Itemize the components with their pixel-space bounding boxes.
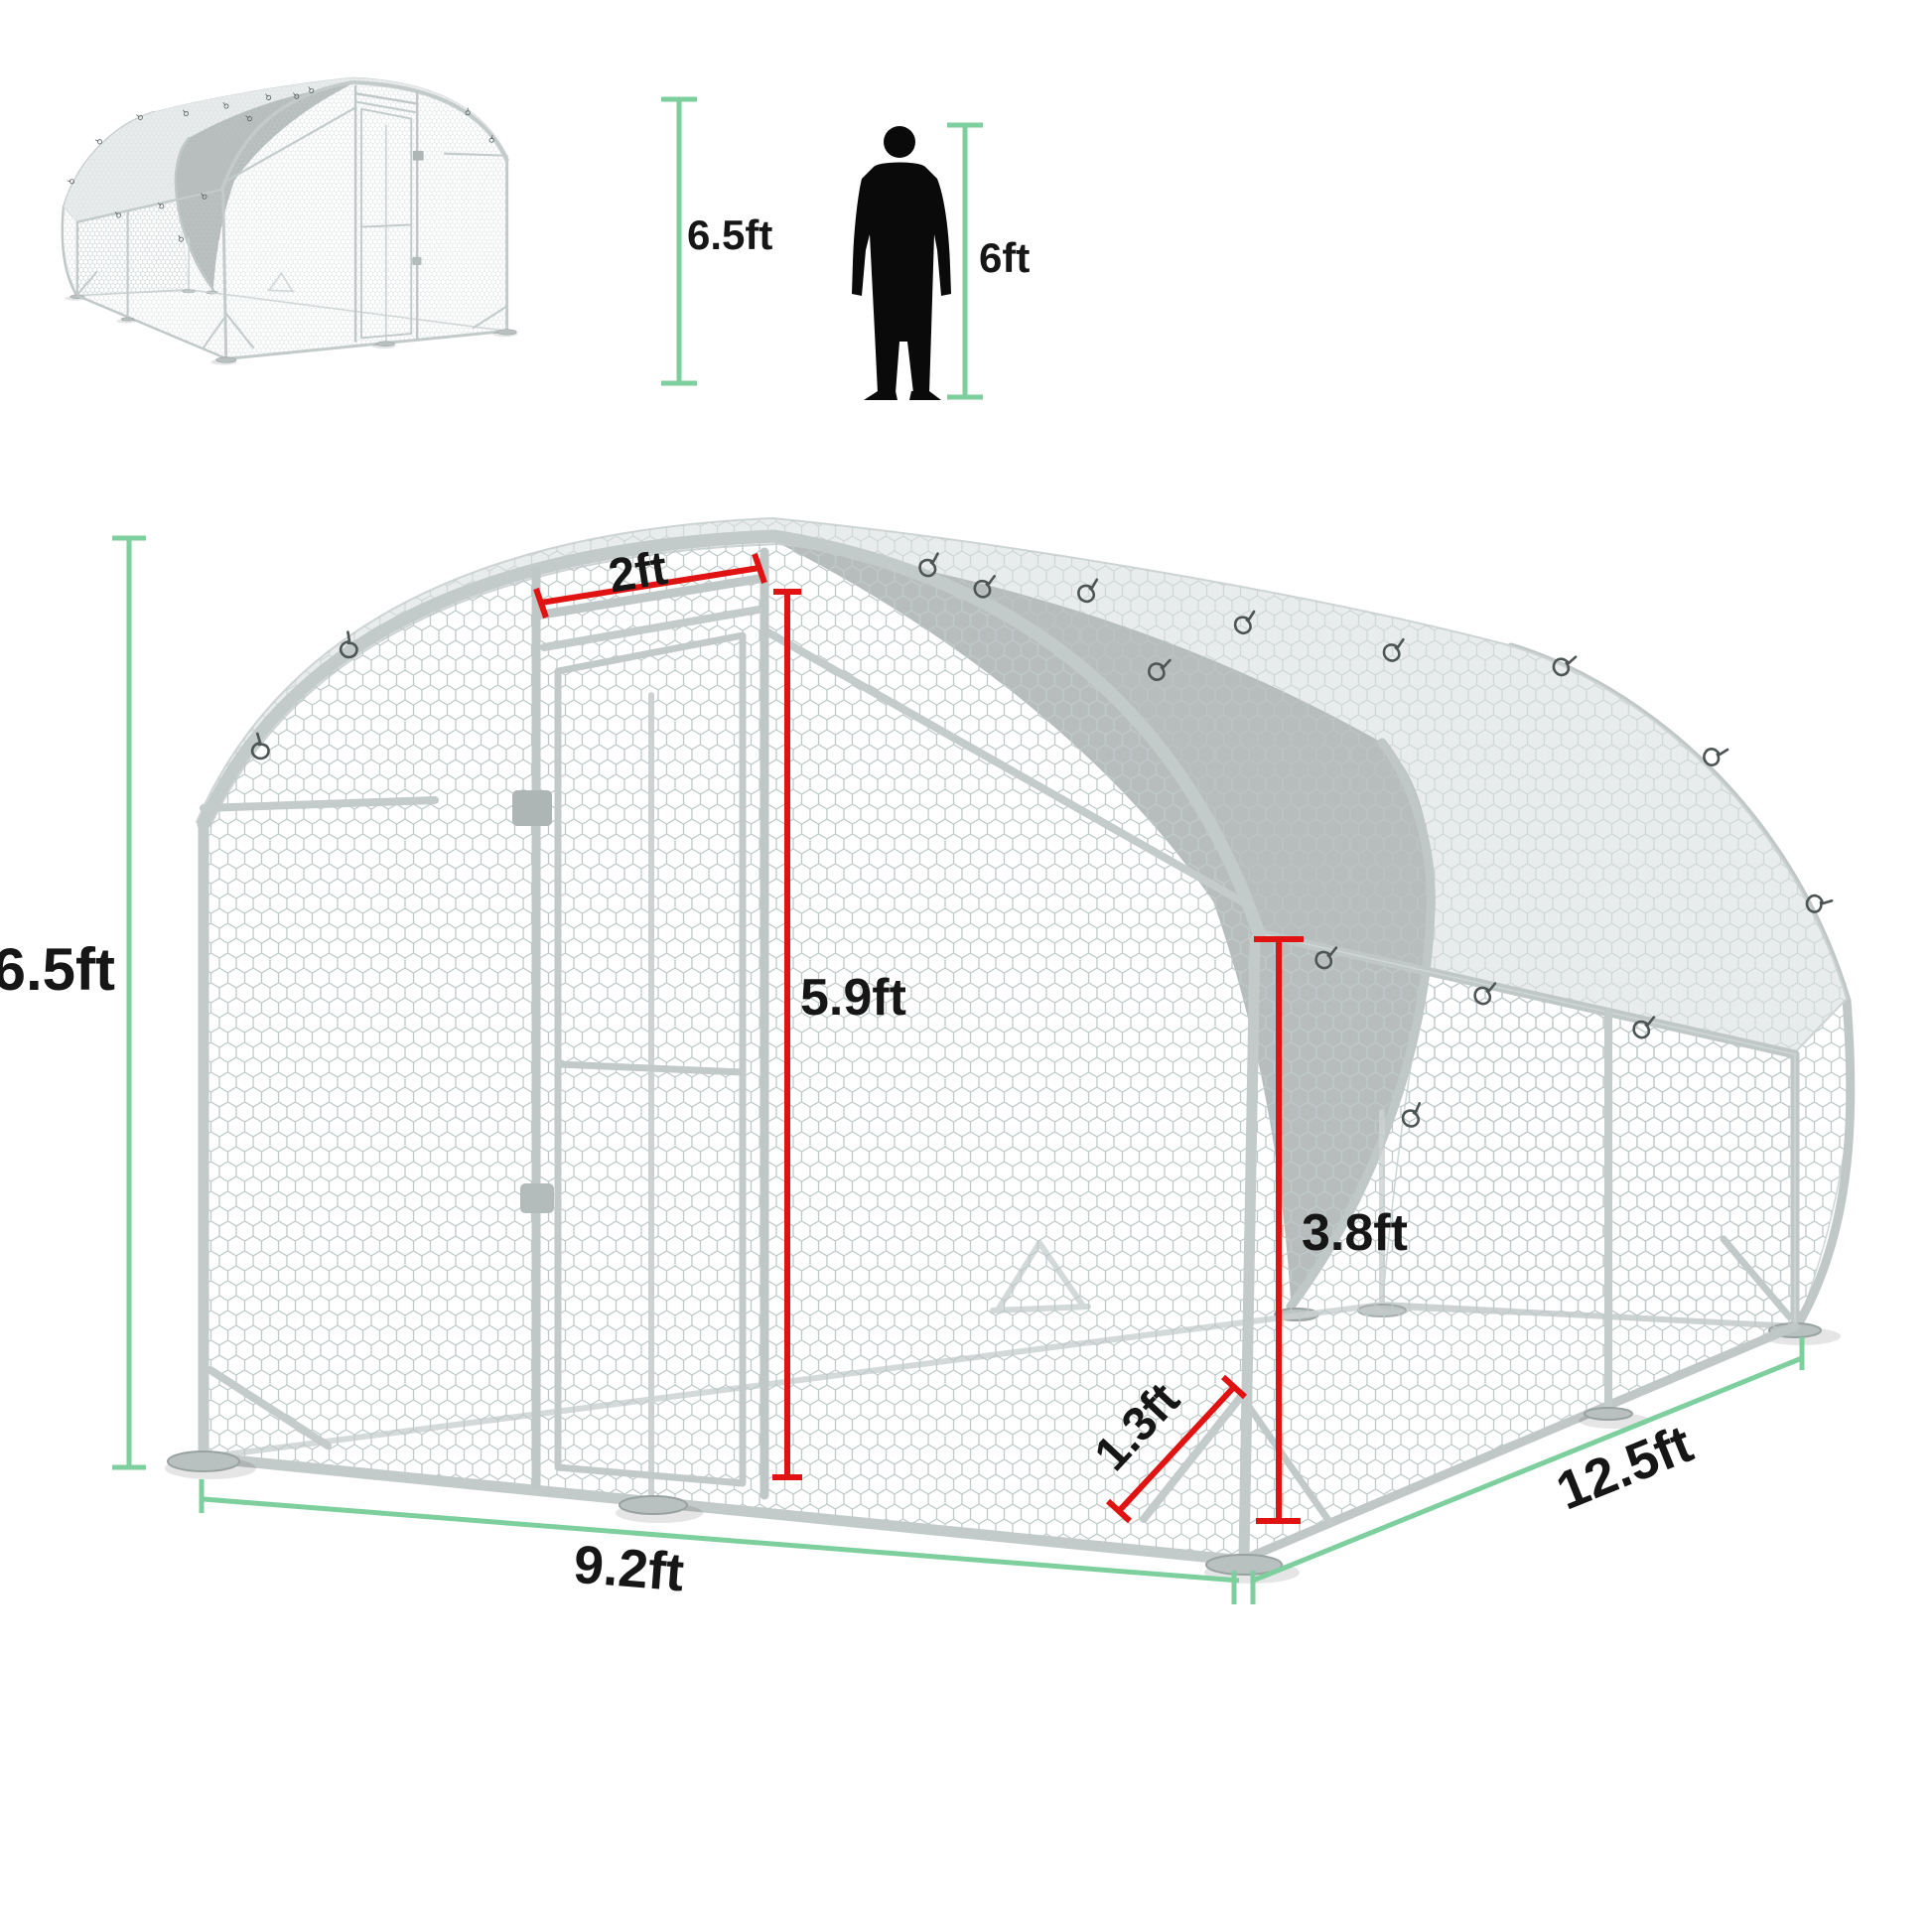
product-dimension-diagram: 6.5ft 6ft 6.5ft 9.2ft 12.5ft 2ft 5.9ft	[0, 0, 1932, 1932]
person-silhouette-icon	[852, 126, 951, 400]
total-height-label: 6.5ft	[0, 936, 115, 1003]
thumbnail-height-measure: 6.5ft	[661, 99, 772, 383]
thumbnail-height-label: 6.5ft	[687, 211, 772, 258]
main-coop	[165, 518, 1852, 1584]
total-height-measure: 6.5ft	[0, 538, 146, 1467]
diagram-canvas: 6.5ft 6ft 6.5ft 9.2ft 12.5ft 2ft 5.9ft	[0, 0, 1932, 1932]
side-wall-height-label: 3.8ft	[1302, 1204, 1408, 1262]
door-height-label: 5.9ft	[800, 969, 906, 1027]
person-height-label: 6ft	[979, 234, 1030, 281]
person-height-measure: 6ft	[947, 125, 1030, 397]
front-width-label: 9.2ft	[572, 1535, 686, 1603]
door-width-label: 2ft	[605, 542, 670, 604]
thumbnail-coop	[62, 77, 517, 365]
